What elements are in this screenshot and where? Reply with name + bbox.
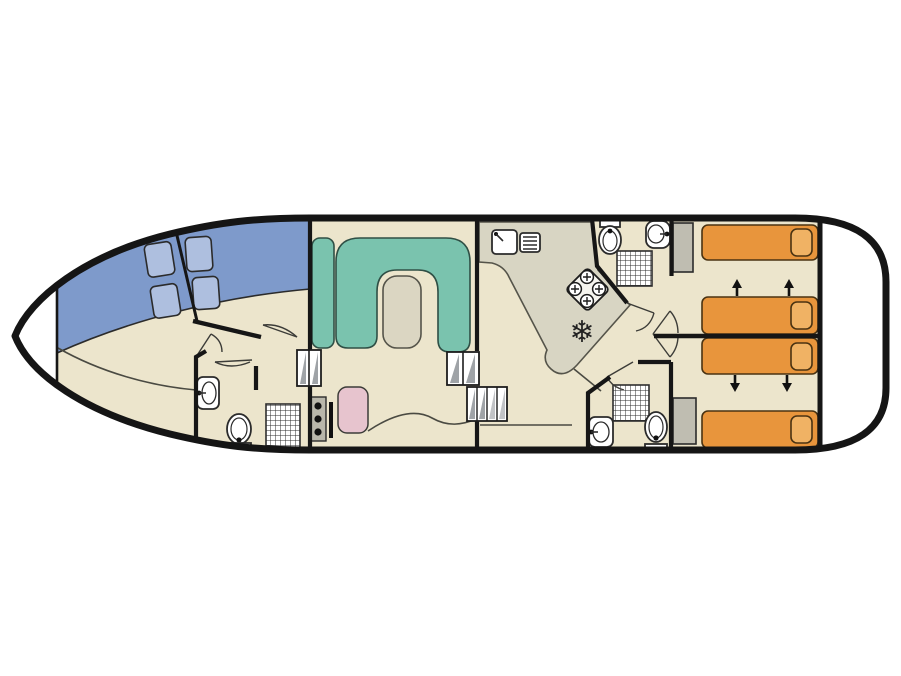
wardrobe <box>673 223 693 272</box>
window-hatch <box>185 236 213 272</box>
window-hatch <box>150 283 182 319</box>
saloon-steps-lower <box>467 387 507 421</box>
sofa-side-bench <box>312 238 334 348</box>
console-knob <box>314 402 321 409</box>
boat-floorplan-canvas: ❄ <box>0 0 901 676</box>
wardrobe <box>673 398 696 444</box>
shower-tray <box>613 385 649 421</box>
helm-seat <box>338 387 368 433</box>
console-knob <box>314 428 321 435</box>
toilet-hinge <box>653 435 658 440</box>
saloon-table <box>383 276 421 348</box>
bow-deck <box>0 200 57 480</box>
toilet-hinge <box>236 437 241 442</box>
pillow <box>791 302 812 329</box>
steering-wheel <box>329 402 333 438</box>
pillow <box>791 229 812 256</box>
fridge-snowflake-icon: ❄ <box>569 315 594 350</box>
shower-tray <box>617 251 652 286</box>
console-knob <box>314 415 321 422</box>
toilet-hinge <box>608 229 613 234</box>
saloon-steps-upper <box>447 352 479 385</box>
window-hatch <box>144 241 176 278</box>
pillow <box>791 416 812 443</box>
pillow <box>791 343 812 370</box>
galley-sink-unit <box>492 230 540 254</box>
floorplan-svg: ❄ <box>0 0 901 676</box>
side-door-steps <box>297 350 321 386</box>
window-hatch <box>192 276 220 310</box>
shower-tray <box>266 404 300 448</box>
